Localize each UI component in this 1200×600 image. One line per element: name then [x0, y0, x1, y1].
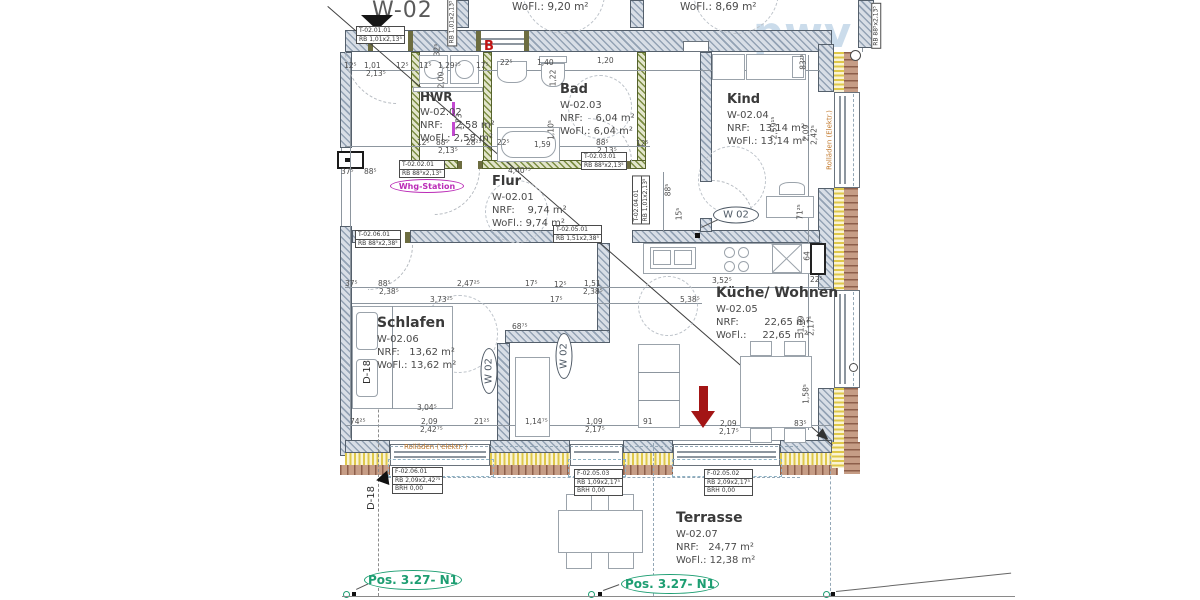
dimension-label: 74²⁵: [350, 418, 366, 426]
dimension-label: 2,17⁵: [719, 428, 739, 436]
room-detail-line: NRF: 13,62 m²: [377, 346, 456, 359]
room-detail-line: W-02.04: [727, 109, 806, 122]
door-jamb: [405, 232, 410, 243]
reference-tag-line: RB 2,09x2,42⁷⁵: [393, 476, 442, 485]
dimension-label: 2,13⁵: [438, 147, 458, 155]
burner-icon: [738, 247, 749, 258]
dimension-label: 1,40: [537, 59, 554, 67]
dimension-label: 2,17⁵: [585, 426, 605, 434]
reference-tag: T-02.01.01RB 1,01x2,13⁵: [356, 26, 405, 44]
reference-tag-line: T-02.03.01: [582, 153, 626, 161]
oval-label: W 02: [713, 207, 759, 224]
dimension-label: 2,13⁵: [366, 70, 386, 78]
room-title: Kind: [727, 92, 806, 107]
dimension-label: 37⁵: [341, 168, 354, 176]
window-right-upper: [834, 92, 860, 188]
sofa-cushion-line: [638, 400, 680, 401]
room-detail-line: WoFl.: 12,38 m²: [676, 554, 755, 567]
room-detail-line: WoFl.: 22,65 m²: [716, 329, 838, 342]
dimension-label: 1,14⁷⁵: [525, 418, 548, 426]
room-title: HWR: [420, 90, 495, 104]
insulation-right: [834, 188, 844, 290]
dimension-label: 1,58⁵: [802, 384, 810, 404]
terrace-chair: [566, 494, 592, 511]
door-jamb: [408, 31, 413, 51]
wall-mid: [632, 230, 820, 243]
dimension-label: 2,42⁷⁵: [420, 426, 443, 434]
red-arrow-shaft: [699, 386, 708, 412]
reference-tag-line: RB 1,01x2,13⁵: [357, 35, 404, 44]
dimension-label: 3,04⁵: [417, 404, 437, 412]
reference-tag: T-02.05.01RB 1,51x2,38⁵: [553, 225, 602, 243]
room-detail-line: W-02.01: [492, 191, 567, 204]
leader-line: [836, 573, 1011, 592]
axis-line: [830, 456, 831, 596]
annotation-text: B: [484, 40, 494, 53]
annotation-text: D-18: [363, 360, 373, 384]
shutter-rail: [853, 94, 854, 186]
room-detail-line: W-02.06: [377, 333, 456, 346]
reference-tag-line: F-02.05.03: [575, 470, 622, 478]
dimension-label: 37⁵: [345, 280, 358, 288]
oval-label: W 02: [556, 333, 573, 379]
room-label-terrasse: TerrasseW-02.07NRF: 24,77 m²WoFl.: 12,38…: [676, 510, 755, 567]
reference-tag-line: T-02.01.01: [357, 27, 404, 35]
insulation-bottom: [623, 453, 673, 465]
window-glazing: [844, 96, 846, 184]
dimension-label: 17⁵: [476, 62, 489, 70]
reference-tag: T-02.06.01RB 88⁵x2,38⁵: [355, 230, 401, 248]
burner-icon: [724, 247, 735, 258]
room-detail-line: NRF: 22,65 m²: [716, 316, 838, 329]
reference-tag-line: RB 88⁵x2,13⁵: [872, 4, 880, 48]
reference-tag-line: RB 88⁵x2,13⁵: [582, 161, 626, 170]
burner-icon: [738, 261, 749, 272]
room-detail-line: W-02.05: [716, 303, 838, 316]
annotation-text: WoFl.: 9,20 m²: [512, 2, 589, 13]
red-arrow-icon: [691, 411, 715, 428]
room-label-kind: KindW-02.04NRF: 13,14 m²WoFl.: 13,14 m²: [727, 92, 806, 148]
terrace-chair: [608, 494, 634, 511]
annotation-text: D-18: [367, 486, 377, 510]
wall-bottom-pier: [345, 440, 390, 453]
sofa-cushion-line: [638, 372, 680, 373]
reference-tag-line: RB 88⁵x2,38⁵: [356, 239, 400, 248]
dimension-label: 22⁵: [810, 276, 823, 284]
dimension-label: 2,38⁵: [379, 288, 399, 296]
reference-tag: F-02.06.01RB 2,09x2,42⁷⁵BRH 0,00: [392, 467, 443, 494]
window-glazing: [677, 451, 776, 453]
room-detail-line: WoFl.: 13,62 m²: [377, 359, 456, 372]
dimension-label: 22⁵: [497, 139, 510, 147]
room-detail-line: W-02.07: [676, 528, 755, 541]
leader-line: [603, 584, 619, 591]
reference-tag-line: BRH 0,00: [393, 484, 442, 493]
reference-tag-line: RB 2,09x2,17⁵: [705, 478, 752, 487]
room-title: Bad: [560, 82, 635, 97]
room-detail-line: WoFl.: 13,14 m²: [727, 135, 806, 148]
sofa: [638, 344, 680, 428]
window-glazing: [839, 96, 841, 184]
door-jamb: [478, 161, 482, 169]
dimension-label: 2,42⁵: [810, 125, 818, 145]
dimension-label: 32⁵: [433, 44, 441, 57]
door-swing-arc: [345, 52, 397, 104]
reference-tag-line: F-02.06.01: [393, 468, 442, 476]
reference-tag-line: T-02.05.01: [554, 226, 601, 234]
window-glazing: [839, 294, 841, 384]
room-label-bad: BadW-02.03NRF: 6,04 m²WoFl.: 6,04 m²: [560, 82, 635, 138]
floor-plan-canvas: W-02 pwv: [0, 0, 1200, 600]
room-detail-line: NRF: 13,14 m²: [727, 122, 806, 135]
dimension-label: 15⁵: [675, 208, 683, 221]
dimension-label: 17⁵: [525, 280, 538, 288]
dimension-label: 91: [643, 418, 653, 426]
dim-chain: [350, 58, 351, 438]
dimension-label: 3,73²⁵: [430, 296, 453, 304]
insulation-bottom: [780, 453, 832, 465]
brick-bottom: [490, 465, 570, 475]
reference-tag-line: RB 1,09x2,17⁵: [575, 478, 622, 487]
room-label-schlafen: SchlafenW-02.06NRF: 13,62 m²WoFl.: 13,62…: [377, 315, 456, 372]
room-title: Terrasse: [676, 510, 755, 526]
reference-tag-line: RB 88⁵x2,13⁵: [400, 169, 444, 178]
window-glazing: [677, 456, 776, 458]
leader-dot: [695, 233, 700, 238]
reference-tag-line: T-02.02.01: [400, 161, 444, 169]
dimension-label: 88⁵: [364, 168, 377, 176]
wall-stub-top: [455, 0, 469, 28]
window-glazing: [394, 451, 486, 453]
dimension-label: 83⁵: [794, 420, 807, 428]
reference-tag-line: F-02.05.02: [705, 470, 752, 478]
room-title: Schlafen: [377, 315, 456, 331]
dimension-label: 2,38⁵: [583, 288, 603, 296]
dim-chain: [663, 172, 664, 232]
room-detail-line: W-02.02: [420, 106, 495, 119]
terrace-table: [558, 510, 643, 553]
window-glazing: [394, 456, 486, 458]
reference-tag-line: T-02.06.01: [356, 231, 400, 239]
sink-bowl: [674, 250, 692, 265]
dimension-label: 12⁵: [344, 62, 357, 70]
axis-line: [653, 443, 654, 596]
dimension-label: 17⁵: [550, 296, 563, 304]
chair: [779, 182, 805, 195]
room-detail-line: NRF: 24,77 m²: [676, 541, 755, 554]
dimension-label: 12⁵: [554, 281, 567, 289]
dimension-label: 3,52⁵: [712, 277, 732, 285]
wall-bad-bottom: [630, 160, 646, 169]
reference-tag-line: RB 1,51x2,38⁵: [554, 234, 601, 243]
downpipe-icon: [849, 363, 858, 372]
oval-label: W 02: [481, 348, 498, 394]
downpipe-icon: [850, 50, 861, 61]
reference-tag: F-02.05.02RB 2,09x2,17⁵BRH 0,00: [704, 469, 753, 496]
dimension-label: 21²⁵: [474, 418, 490, 426]
reference-tag: RB 88⁵x2,13⁵: [871, 3, 881, 49]
fridge: [810, 243, 826, 275]
chair: [784, 341, 806, 356]
insulation-bottom: [345, 453, 390, 465]
reference-tag: T-02.02.01RB 88⁵x2,13⁵: [399, 160, 445, 178]
reference-tag-line: T-02.04.01: [633, 177, 641, 224]
desk: [766, 196, 814, 218]
terrace-chair: [566, 552, 592, 569]
dimension-label: 88⁵: [664, 184, 672, 197]
brick-bottom: [623, 465, 673, 475]
dimension-label: 1,59: [534, 141, 551, 149]
oval-label: Pos. 3.27- N1: [621, 574, 719, 594]
oval-label: Pos. 3.27- N1: [364, 570, 462, 590]
reference-tag-line: BRH 0,00: [575, 486, 622, 495]
window-glazing: [844, 294, 846, 384]
clearance-circle: [638, 276, 698, 336]
dimension-label: 5,38⁵: [680, 296, 700, 304]
annotation-text: WoFl.: 8,69 m²: [680, 2, 757, 13]
room-label-flur: FlurW-02.01NRF: 9,74 m²WoFl.: 9,74 m²: [492, 174, 567, 230]
dimension-label: 12⁵: [636, 140, 649, 148]
room-label-k-che-wohnen: Küche/ WohnenW-02.05NRF: 22,65 m²WoFl.: …: [716, 285, 838, 342]
insulation-corner: [832, 442, 844, 468]
room-label-hwr: HWRW-02.02NRF: 2,58 m²WoFl.: 2,58 m²: [420, 90, 495, 145]
door-jamb: [458, 161, 462, 169]
annotation-text: Rolläden ('elektr.'): [404, 444, 468, 451]
room-detail-line: WoFl.: 6,04 m²: [560, 125, 635, 138]
brick-right: [844, 188, 858, 290]
reference-tag-line: BRH 0,00: [705, 486, 752, 495]
dimension-label: 2,00: [437, 72, 445, 89]
window-jamb: [476, 31, 481, 51]
wardrobe: [712, 54, 745, 80]
wall-right-inner: [818, 44, 834, 92]
room-title: Küche/ Wohnen: [716, 285, 838, 301]
dimension-label: 71²⁵: [796, 204, 804, 220]
chair: [750, 428, 772, 443]
dimension-label: 64: [803, 251, 811, 261]
oval-label: Whg-Station: [390, 179, 464, 193]
sheet-edge: [342, 596, 1015, 597]
insulation-right: [834, 52, 844, 92]
dimension-label: 83²⁵: [799, 54, 807, 70]
room-detail-line: NRF: 9,74 m²: [492, 204, 567, 217]
dimension-label: 1,22: [549, 70, 557, 87]
burner-icon: [724, 261, 735, 272]
wall-stub-top: [630, 0, 644, 28]
door-jamb: [626, 161, 630, 169]
chair: [784, 428, 806, 443]
reference-tag: T-02.04.01RB 1,01x2,13⁵: [632, 176, 650, 225]
brick-corner: [844, 442, 860, 474]
sink-bowl: [653, 250, 671, 265]
clearance-circle: [698, 146, 766, 214]
insulation-bottom: [490, 453, 570, 465]
window-jamb: [524, 31, 529, 51]
window-glazing: [574, 451, 619, 453]
chair: [750, 341, 772, 356]
room-detail-line: WoFl.: 2,58 m²: [420, 132, 495, 145]
dimension-label: 11⁵: [419, 62, 432, 70]
wall-top: [345, 30, 832, 52]
dimension-label: 1,29²⁵: [438, 62, 461, 70]
room-detail-line: NRF: 6,04 m²: [560, 112, 635, 125]
reference-tag: RB 1,01x2,13⁵: [447, 0, 457, 46]
dimension-label: 1,20: [597, 57, 614, 65]
dimension-label: 2,47²⁵: [457, 280, 480, 288]
dimension-label: 22⁵: [500, 59, 513, 67]
leader-line: [356, 584, 368, 590]
wall-niche: [683, 41, 709, 52]
room-detail-line: NRF: 2,58 m²: [420, 119, 495, 132]
reference-tag-line: RB 1,01x2,13⁵: [448, 0, 456, 45]
pillow: [356, 312, 378, 350]
dimension-label: 68⁷⁵: [512, 323, 528, 331]
dimension-label: 12⁵: [396, 62, 409, 70]
reference-tag: F-02.05.03RB 1,09x2,17⁵BRH 0,00: [574, 469, 623, 496]
reference-tag: T-02.03.01RB 88⁵x2,13⁵: [581, 152, 627, 170]
room-title: Flur: [492, 174, 567, 189]
dimension-label: 1,10⁵: [547, 120, 555, 140]
room-detail-line: W-02.03: [560, 99, 635, 112]
reference-tag-line: RB 1,01x2,13⁵: [641, 177, 650, 224]
annotation-text: Rolläden (Elektr.): [827, 110, 834, 170]
terrace-chair: [608, 552, 634, 569]
